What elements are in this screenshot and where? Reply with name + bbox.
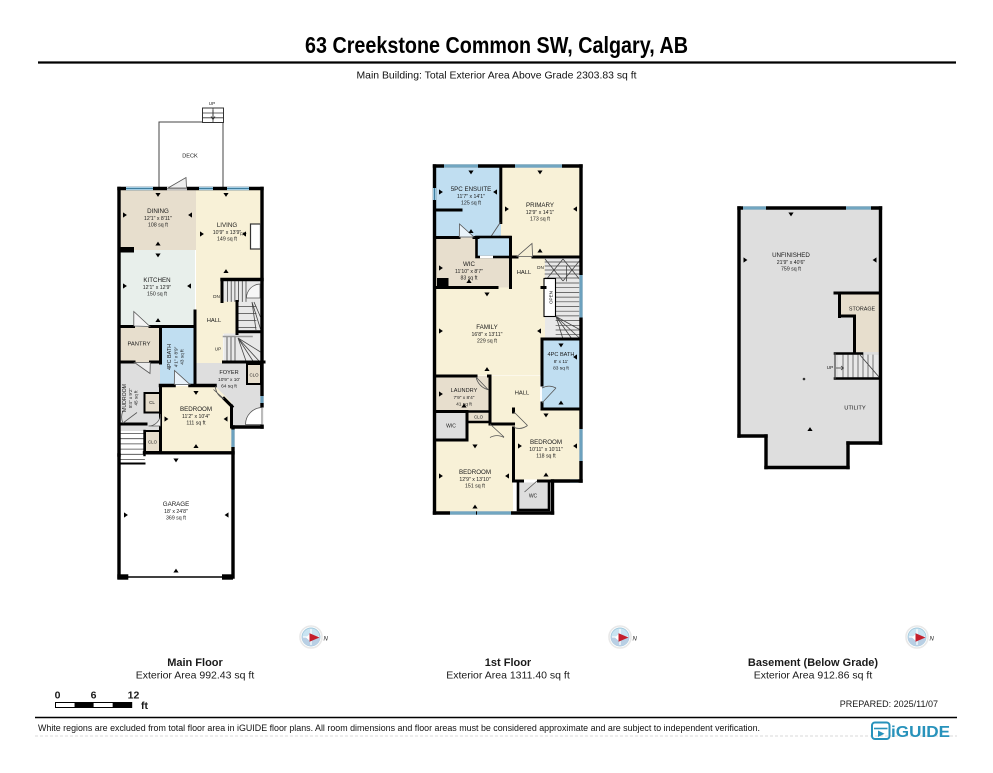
- svg-text:63 Creekstone Common SW, Calga: 63 Creekstone Common SW, Calgary, AB: [305, 32, 688, 58]
- svg-text:STORAGE: STORAGE: [849, 307, 876, 313]
- svg-text:Main Building: Total Exterior: Main Building: Total Exterior Area Above…: [357, 70, 637, 82]
- svg-text:ft: ft: [141, 700, 148, 712]
- svg-text:64 sq ft: 64 sq ft: [221, 384, 237, 390]
- svg-text:Main Floor: Main Floor: [167, 657, 223, 669]
- svg-text:8' x 11': 8' x 11': [554, 359, 569, 365]
- svg-text:11'2" x 10'4": 11'2" x 10'4": [182, 414, 210, 420]
- svg-text:10'9" x 10': 10'9" x 10': [218, 377, 240, 383]
- svg-text:4PC BATH: 4PC BATH: [167, 344, 173, 370]
- svg-text:11'10" x 8'7": 11'10" x 8'7": [455, 269, 483, 275]
- svg-text:0: 0: [55, 690, 61, 702]
- svg-text:FAMILY: FAMILY: [476, 324, 498, 331]
- svg-text:KITCHEN: KITCHEN: [143, 277, 170, 284]
- svg-text:111 sq ft: 111 sq ft: [186, 421, 206, 427]
- svg-text:CLO: CLO: [474, 415, 484, 420]
- svg-text:DN: DN: [213, 294, 220, 299]
- svg-text:CLO: CLO: [148, 440, 158, 445]
- svg-text:HALL: HALL: [517, 270, 532, 276]
- svg-text:5PC ENSUITE: 5PC ENSUITE: [451, 186, 492, 193]
- svg-text:BEDROOM: BEDROOM: [530, 439, 562, 446]
- svg-text:12'9" x 14'1": 12'9" x 14'1": [526, 210, 555, 216]
- svg-text:149 sq ft: 149 sq ft: [217, 237, 237, 243]
- svg-text:Exterior Area 992.43 sq ft: Exterior Area 992.43 sq ft: [136, 670, 255, 682]
- svg-text:12: 12: [128, 690, 140, 702]
- svg-text:6: 6: [91, 690, 97, 702]
- svg-text:759 sq ft: 759 sq ft: [781, 267, 801, 273]
- svg-text:Basement (Below Grade): Basement (Below Grade): [748, 657, 879, 669]
- svg-text:HALL: HALL: [515, 391, 530, 397]
- svg-text:45 sq ft: 45 sq ft: [134, 390, 139, 406]
- svg-text:N: N: [324, 637, 329, 643]
- svg-text:108 sq ft: 108 sq ft: [148, 223, 168, 229]
- svg-text:UP: UP: [209, 101, 215, 106]
- svg-text:N: N: [633, 637, 638, 643]
- svg-text:iGUIDE: iGUIDE: [891, 724, 950, 741]
- svg-text:DINING: DINING: [147, 208, 169, 215]
- svg-text:HALL: HALL: [207, 318, 222, 324]
- svg-text:BEDROOM: BEDROOM: [459, 469, 491, 476]
- svg-text:Exterior Area 1311.40 sq ft: Exterior Area 1311.40 sq ft: [446, 670, 570, 682]
- svg-text:UNFINISHED: UNFINISHED: [772, 252, 810, 259]
- svg-text:FOYER: FOYER: [219, 370, 238, 376]
- svg-text:WIC: WIC: [446, 424, 456, 430]
- svg-text:UP: UP: [827, 365, 834, 371]
- svg-text:10'9" x 13'9": 10'9" x 13'9": [213, 230, 242, 236]
- svg-text:LIVING: LIVING: [217, 222, 237, 229]
- svg-text:8'4" x 9'2": 8'4" x 9'2": [128, 388, 133, 408]
- svg-text:12'1" x 12'9": 12'1" x 12'9": [143, 285, 172, 291]
- svg-text:PANTRY: PANTRY: [128, 342, 151, 348]
- svg-text:GARAGE: GARAGE: [163, 501, 189, 508]
- svg-text:7'9" x 8'4": 7'9" x 8'4": [454, 395, 475, 401]
- svg-text:10'11" x 10'11": 10'11" x 10'11": [529, 447, 563, 453]
- svg-text:4PC BATH: 4PC BATH: [548, 352, 575, 358]
- svg-text:UP: UP: [215, 347, 221, 352]
- svg-text:12'1" x 8'11": 12'1" x 8'11": [144, 216, 172, 222]
- svg-text:83 sq ft: 83 sq ft: [553, 366, 569, 372]
- svg-text:18' x 24'8": 18' x 24'8": [164, 509, 188, 515]
- svg-text:1st Floor: 1st Floor: [485, 657, 532, 669]
- svg-text:CLO: CLO: [249, 373, 259, 378]
- svg-text:WC: WC: [529, 494, 538, 500]
- svg-text:229 sq ft: 229 sq ft: [477, 339, 497, 345]
- svg-text:118 sq ft: 118 sq ft: [536, 454, 556, 460]
- svg-text:DECK: DECK: [182, 154, 198, 160]
- svg-text:21'9" x 40'6": 21'9" x 40'6": [777, 260, 806, 266]
- svg-text:UTILITY: UTILITY: [844, 406, 866, 412]
- svg-text:PREPARED: 2025/11/07: PREPARED: 2025/11/07: [840, 699, 938, 709]
- svg-text:150 sq ft: 150 sq ft: [147, 292, 167, 298]
- svg-text:LAUNDRY: LAUNDRY: [451, 388, 478, 394]
- svg-text:OPEN: OPEN: [549, 291, 554, 304]
- svg-text:CL: CL: [149, 400, 155, 405]
- svg-text:11'7" x 14'1": 11'7" x 14'1": [457, 194, 485, 200]
- svg-text:DN: DN: [537, 265, 544, 270]
- svg-text:369 sq ft: 369 sq ft: [166, 516, 186, 522]
- svg-text:125 sq ft: 125 sq ft: [461, 201, 481, 207]
- svg-text:Exterior Area 912.86 sq ft: Exterior Area 912.86 sq ft: [754, 670, 873, 682]
- svg-text:N: N: [930, 637, 935, 643]
- svg-text:151 sq ft: 151 sq ft: [465, 484, 485, 490]
- svg-text:16'8" x 13'11": 16'8" x 13'11": [472, 332, 503, 338]
- svg-text:12'9" x 13'10": 12'9" x 13'10": [459, 477, 490, 483]
- svg-text:WIC: WIC: [463, 261, 476, 268]
- svg-text:PRIMARY: PRIMARY: [526, 202, 554, 209]
- svg-text:BEDROOM: BEDROOM: [180, 406, 212, 413]
- svg-text:White regions are excluded fro: White regions are excluded from total fl…: [38, 723, 760, 733]
- svg-text:4'1" x 8'9": 4'1" x 8'9": [174, 346, 179, 367]
- svg-text:43 sq ft: 43 sq ft: [180, 349, 185, 365]
- svg-text:173 sq ft: 173 sq ft: [530, 217, 550, 223]
